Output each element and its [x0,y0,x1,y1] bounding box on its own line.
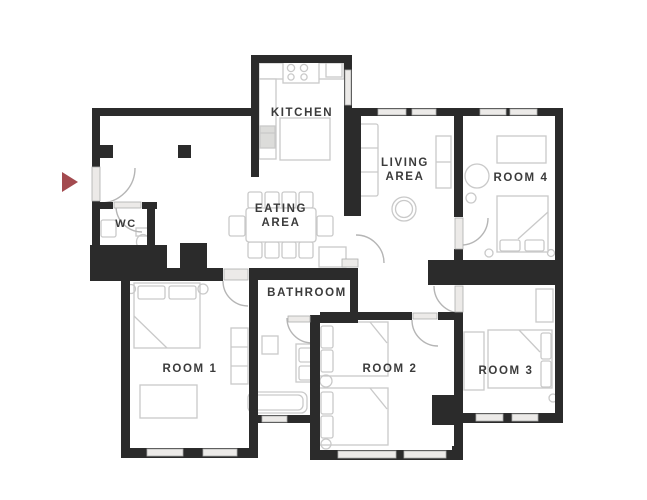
label-living-line1: LIVING [381,157,429,169]
bathroom-fixtures [248,336,317,413]
label-kitchen: KITCHEN [271,106,333,120]
label-living-area: LIVINGAREA [381,156,429,184]
label-eating-area: EATINGAREA [255,202,307,230]
kitchen-appliance [260,126,275,148]
label-eating-line1: EATING [255,203,307,215]
room3-furniture [464,289,557,402]
label-living-line2: AREA [386,171,425,183]
hall-door-arc [356,235,384,263]
entry-door-arc [100,168,135,203]
coffee-table [392,197,416,221]
tv-sideboard [436,136,451,188]
label-eating-line2: AREA [261,217,300,229]
label-bathroom: BATHROOM [267,286,347,300]
label-room4: ROOM 4 [494,171,549,185]
label-wc: WC [115,217,137,231]
entry-arrow-icon [62,172,78,192]
room2-furniture [318,322,388,449]
room1-door-arc [223,281,248,306]
room4-door-arc [461,218,488,245]
room2-door-arc [412,320,438,346]
stove-icon [283,61,319,83]
floor-plan-drawing [0,0,647,500]
label-room3: ROOM 3 [479,364,534,378]
label-room1: ROOM 1 [163,362,218,376]
floor-plan: KITCHEN LIVINGAREA ROOM 4 EATINGAREA WC … [0,0,647,500]
label-room2: ROOM 2 [363,362,418,376]
room1-furniture [127,283,249,418]
